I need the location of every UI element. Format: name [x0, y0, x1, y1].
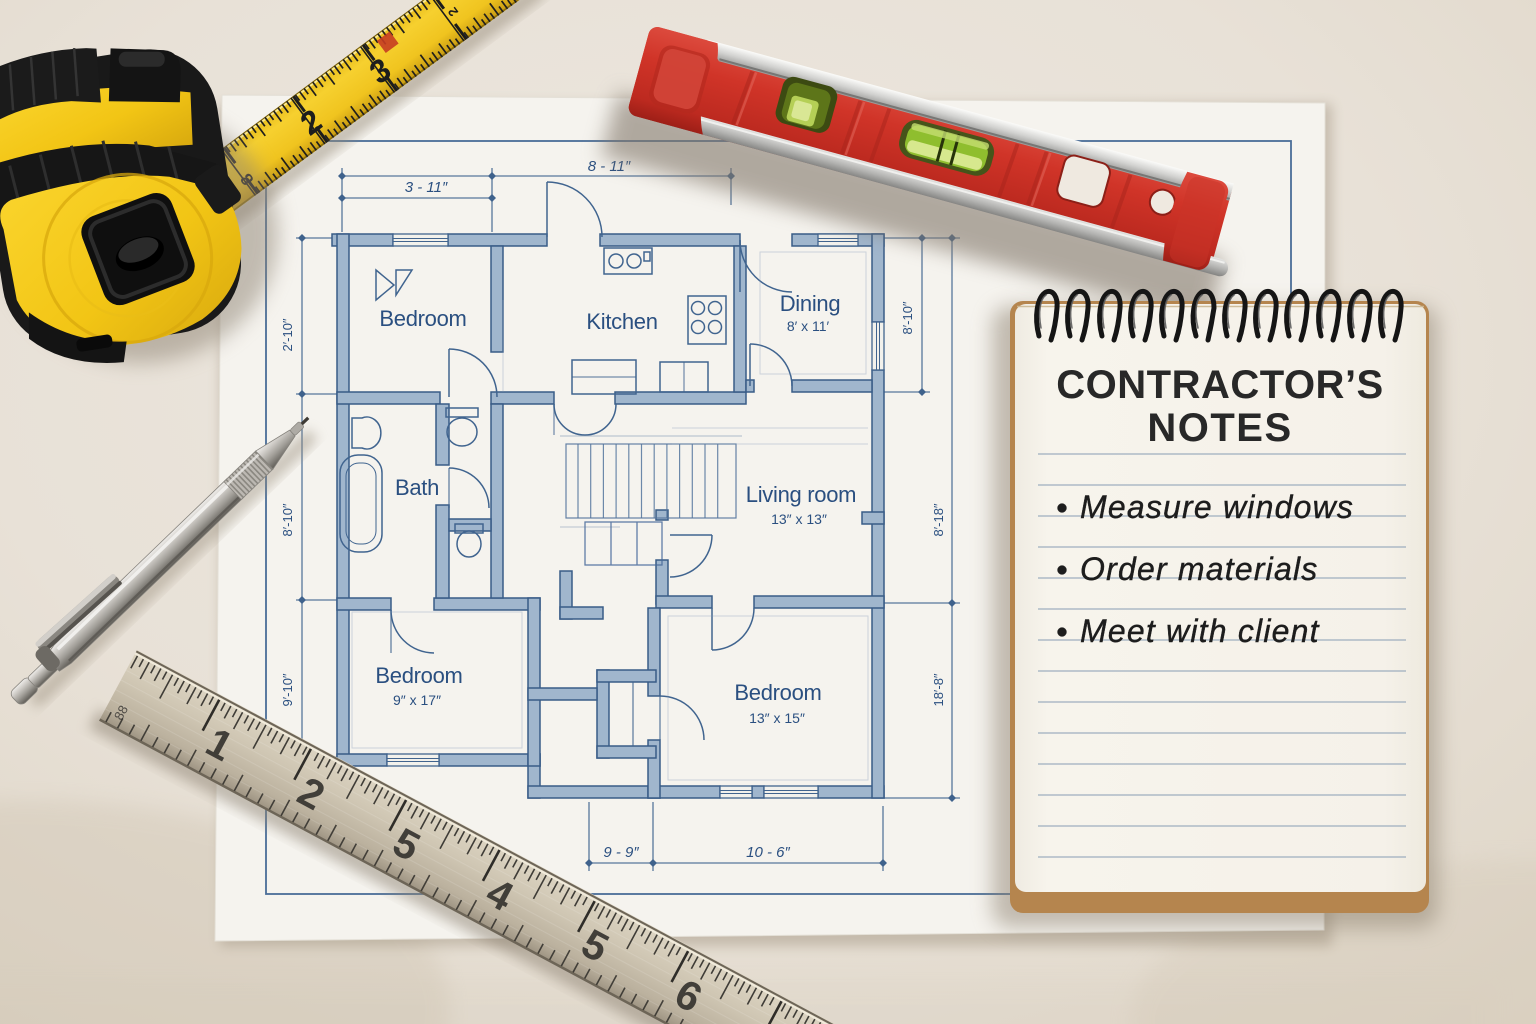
svg-text:NOTES: NOTES [1147, 406, 1292, 450]
svg-text:9′-10″: 9′-10″ [280, 673, 295, 706]
svg-text:Dining: Dining [780, 291, 841, 316]
svg-text:9 - 9″: 9 - 9″ [603, 844, 639, 861]
svg-text:13″ x 15″: 13″ x 15″ [749, 710, 805, 726]
svg-text:8′ x 11′: 8′ x 11′ [787, 318, 830, 334]
svg-text:8′-10″: 8′-10″ [900, 301, 915, 334]
svg-text:CONTRACTOR’S: CONTRACTOR’S [1056, 363, 1383, 407]
svg-text:Bedroom: Bedroom [375, 663, 462, 688]
svg-text:Measure windows: Measure windows [1080, 489, 1354, 525]
svg-text:3 - 11″: 3 - 11″ [405, 179, 448, 196]
svg-text:Kitchen: Kitchen [586, 309, 657, 334]
svg-text:Bath: Bath [395, 475, 439, 500]
svg-text:2′-10″: 2′-10″ [280, 318, 295, 351]
svg-text:Bedroom: Bedroom [734, 680, 821, 705]
svg-text:8′-18″: 8′-18″ [931, 503, 946, 536]
svg-text:13″ x 13″: 13″ x 13″ [771, 511, 827, 527]
svg-text:Order materials: Order materials [1080, 551, 1319, 587]
svg-text:9″ x 17″: 9″ x 17″ [393, 692, 441, 708]
svg-text:Living room: Living room [746, 482, 856, 507]
svg-text:18′-8″: 18′-8″ [931, 673, 946, 706]
svg-text:8′-10″: 8′-10″ [280, 503, 295, 536]
svg-text:10 - 6″: 10 - 6″ [746, 844, 790, 861]
svg-text:Bedroom: Bedroom [379, 306, 466, 331]
svg-text:Meet with client: Meet with client [1080, 613, 1320, 649]
